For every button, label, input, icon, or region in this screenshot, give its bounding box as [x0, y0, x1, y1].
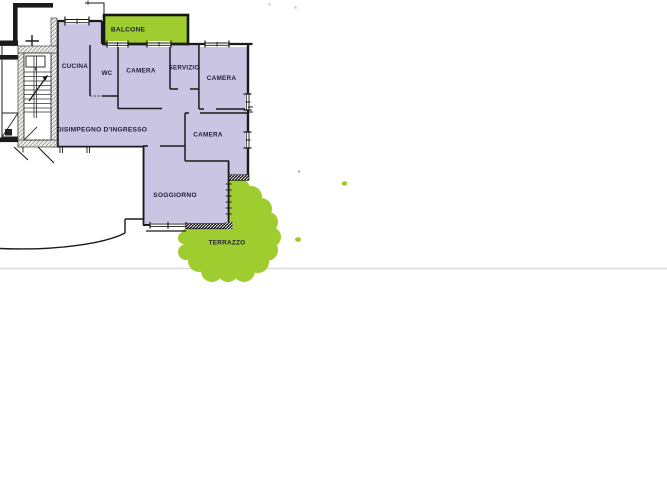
room-disimpegno: [58, 96, 185, 146]
room-label-disimpegno: DISIMPEGNO D'INGRESSO: [57, 127, 147, 134]
floor-plan-image: BALCONE CUCINA WC CAMERA SERVIZIO CAMERA…: [0, 0, 667, 500]
room-label-cucina: CUCINA: [62, 63, 88, 70]
room-label-terrazzo: TERRAZZO: [209, 240, 246, 247]
room-label-servizio: SERVIZIO: [169, 65, 200, 72]
room-label-wc: WC: [102, 70, 113, 77]
room-label-camera-1: CAMERA: [126, 68, 156, 75]
elevator-box: [26, 56, 45, 67]
room-soggiorno: [143, 146, 229, 225]
room-label-camera-2: CAMERA: [207, 75, 237, 82]
room-label-balcone: BALCONE: [111, 27, 146, 34]
room-label-camera-3: CAMERA: [193, 132, 223, 139]
floor-plan-page: BALCONE CUCINA WC CAMERA SERVIZIO CAMERA…: [0, 0, 667, 500]
room-label-soggiorno: SOGGIORNO: [153, 192, 197, 199]
